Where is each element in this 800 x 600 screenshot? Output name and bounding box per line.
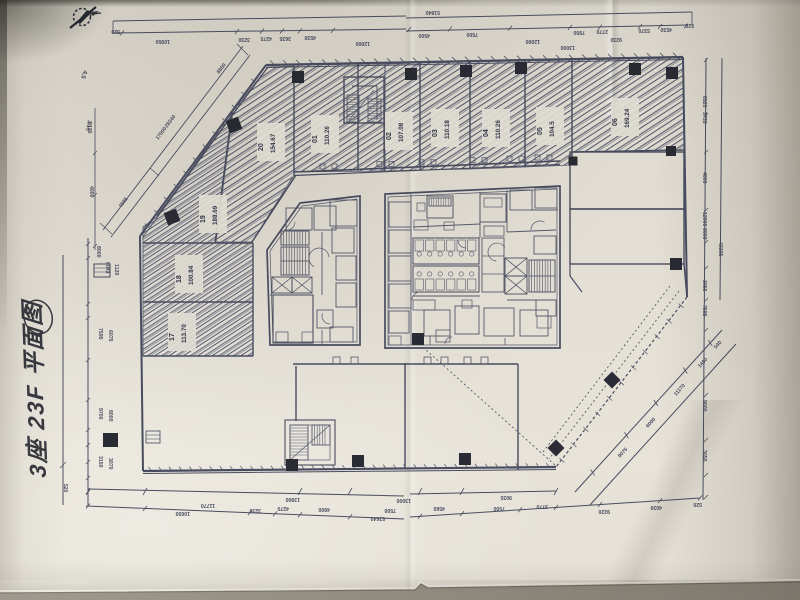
svg-text:113.70: 113.70 xyxy=(181,324,188,343)
svg-text:110.26: 110.26 xyxy=(495,120,502,139)
svg-text:53640: 53640 xyxy=(370,515,385,521)
svg-text:104.5: 104.5 xyxy=(549,121,556,137)
svg-text:520: 520 xyxy=(685,22,694,28)
svg-text:1490: 1490 xyxy=(697,357,709,370)
svg-text:8000: 8000 xyxy=(107,410,113,422)
svg-text:540: 540 xyxy=(713,340,723,351)
svg-text:3.15: 3.15 xyxy=(84,120,92,132)
svg-text:10650: 10650 xyxy=(175,510,190,516)
svg-text:3635: 3635 xyxy=(279,35,291,41)
svg-text:3230: 3230 xyxy=(249,507,261,513)
svg-text:7500: 7500 xyxy=(384,507,396,513)
svg-text:7500: 7500 xyxy=(466,31,478,37)
svg-text:110.18: 110.18 xyxy=(444,120,451,139)
svg-text:107.08: 107.08 xyxy=(398,122,405,142)
svg-text:4560: 4560 xyxy=(433,505,445,511)
svg-text:13900: 13900 xyxy=(285,496,300,502)
svg-text:7595: 7595 xyxy=(97,328,103,340)
svg-text:3230: 3230 xyxy=(238,36,250,42)
svg-text:9000: 9000 xyxy=(701,400,707,412)
svg-text:20: 20 xyxy=(258,143,265,151)
svg-text:13000: 13000 xyxy=(396,497,411,503)
svg-text:7585: 7585 xyxy=(701,305,707,317)
svg-text:05: 05 xyxy=(537,127,544,135)
svg-text:4565: 4565 xyxy=(118,196,130,209)
svg-text:6000: 6000 xyxy=(645,417,657,430)
svg-text:3070: 3070 xyxy=(107,458,113,470)
svg-text:18: 18 xyxy=(176,275,183,283)
svg-text:3150: 3150 xyxy=(97,456,103,468)
svg-text:2770: 2770 xyxy=(596,28,608,34)
svg-text:4530: 4530 xyxy=(660,26,672,32)
svg-text:06: 06 xyxy=(612,118,619,126)
svg-text:3050: 3050 xyxy=(701,450,707,462)
svg-text:04: 04 xyxy=(483,129,490,137)
svg-text:520: 520 xyxy=(111,28,120,34)
svg-text:51840: 51840 xyxy=(425,9,440,15)
svg-text:4,5: 4,5 xyxy=(79,69,88,80)
svg-text:02: 02 xyxy=(386,132,393,140)
svg-text:520: 520 xyxy=(62,484,68,493)
svg-text:4275: 4275 xyxy=(260,35,272,41)
svg-text:4500: 4500 xyxy=(418,32,430,38)
svg-text:9035: 9035 xyxy=(500,494,512,500)
svg-text:3座 23F 平面图: 3座 23F 平面图 xyxy=(19,298,51,479)
svg-text:9075: 9075 xyxy=(617,447,629,460)
svg-text:13000: 13000 xyxy=(560,44,575,50)
svg-text:188.69: 188.69 xyxy=(212,205,219,225)
svg-text:8000: 8000 xyxy=(95,246,101,258)
svg-text:3770: 3770 xyxy=(536,503,548,509)
svg-text:9230: 9230 xyxy=(610,36,622,42)
svg-text:110.26: 110.26 xyxy=(324,126,331,145)
svg-text:4900: 4900 xyxy=(318,506,330,512)
svg-text:17000: 17000 xyxy=(155,126,169,141)
svg-text:169.24: 169.24 xyxy=(624,108,631,128)
svg-text:154.67: 154.67 xyxy=(270,133,277,153)
svg-text:9220: 9220 xyxy=(598,508,610,514)
svg-text:6075: 6075 xyxy=(107,330,113,342)
svg-text:4530: 4530 xyxy=(304,34,316,40)
svg-text:100.84: 100.84 xyxy=(188,265,195,285)
svg-text:12000: 12000 xyxy=(701,212,707,227)
svg-text:03: 03 xyxy=(432,129,439,137)
svg-text:7950: 7950 xyxy=(573,29,585,35)
svg-text:9735: 9735 xyxy=(701,112,707,124)
svg-text:3055: 3055 xyxy=(701,280,707,292)
svg-text:8000: 8000 xyxy=(701,228,707,240)
svg-text:6043: 6043 xyxy=(104,262,110,274)
svg-text:6920: 6920 xyxy=(701,96,707,108)
svg-text:4000: 4000 xyxy=(88,186,94,198)
svg-text:520: 520 xyxy=(693,501,702,507)
svg-text:5370: 5370 xyxy=(638,27,650,33)
svg-text:17: 17 xyxy=(169,333,176,341)
svg-text:43305: 43305 xyxy=(717,242,723,257)
svg-text:4030: 4030 xyxy=(650,504,662,510)
svg-text:9700: 9700 xyxy=(97,408,103,420)
svg-text:19: 19 xyxy=(200,215,207,223)
svg-text:01: 01 xyxy=(312,135,319,143)
svg-text:11770: 11770 xyxy=(201,502,215,508)
svg-text:11170: 11170 xyxy=(673,383,687,397)
svg-text:7500: 7500 xyxy=(493,505,505,511)
svg-text:1120: 1120 xyxy=(113,264,119,275)
svg-text:28240: 28240 xyxy=(164,114,178,129)
svg-text:12000: 12000 xyxy=(355,40,370,46)
svg-text:10950: 10950 xyxy=(155,38,170,44)
svg-text:4270: 4270 xyxy=(277,505,289,511)
svg-text:12000: 12000 xyxy=(525,38,540,44)
svg-text:4000: 4000 xyxy=(701,172,707,184)
